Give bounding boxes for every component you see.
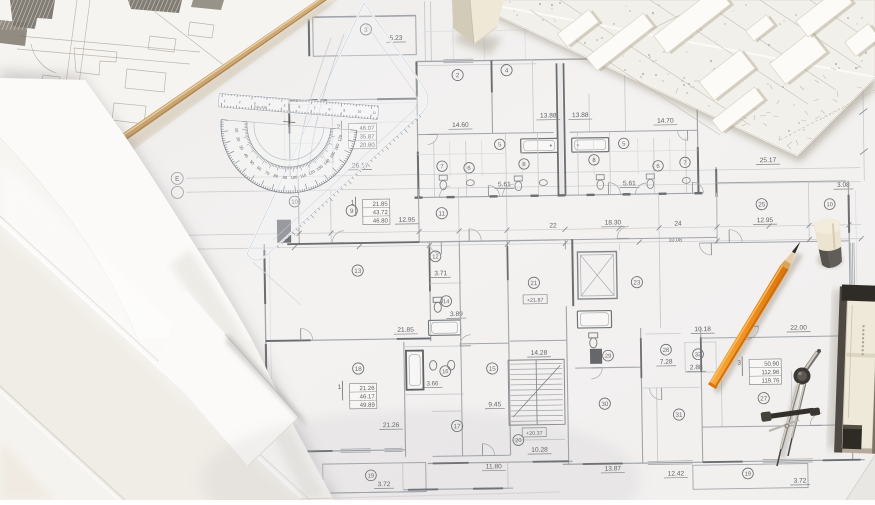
svg-text:11: 11 (372, 111, 376, 115)
svg-text:100: 100 (290, 174, 298, 180)
svg-text:10: 10 (357, 110, 361, 114)
